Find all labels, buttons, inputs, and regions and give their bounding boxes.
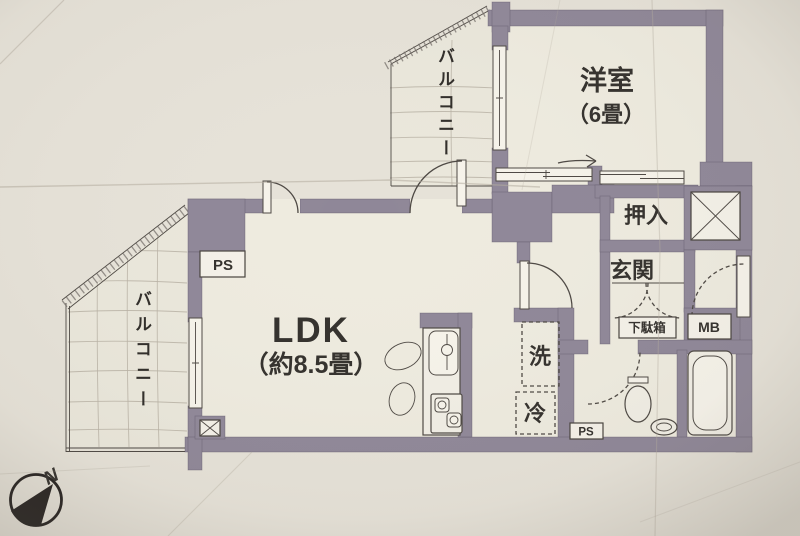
balcony-west-label: バルコニー — [133, 290, 150, 430]
photo-vignette — [0, 0, 800, 536]
floor-plan-photo: PS — [0, 0, 800, 536]
balcony-north-label: バルコニー — [436, 47, 453, 172]
floor-plan-drawing: PS — [0, 0, 800, 536]
